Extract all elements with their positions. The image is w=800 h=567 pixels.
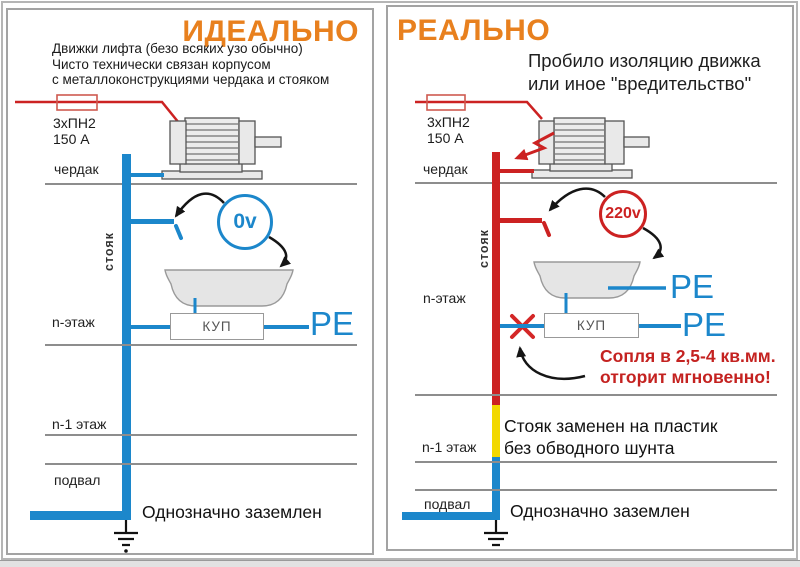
arrow-to-tub: [269, 237, 286, 266]
panel-title: РЕАЛЬНО: [397, 14, 550, 48]
riser-branch: [130, 219, 174, 224]
floor-label-basement: подвал: [54, 472, 100, 488]
floor-label-attic: чердак: [54, 161, 99, 177]
motor-icon: [532, 118, 649, 178]
floor-line: [45, 434, 357, 436]
pe-label: PE: [310, 307, 354, 340]
fuse-label-line: 150 А: [53, 131, 90, 147]
floor-label-n: n-этаж: [52, 314, 95, 330]
fuse-label-line: 3хПН2: [427, 114, 470, 130]
voltmeter-badge: 0v: [217, 194, 273, 250]
floor-line: [45, 183, 357, 185]
branch-tick: [544, 223, 549, 235]
motor-icon: [162, 118, 281, 179]
plastic-note-line: без обводного шунта: [504, 438, 674, 459]
kup-pe-wire: [639, 324, 681, 328]
floor-line: [415, 394, 777, 396]
arrow-to-tub: [643, 228, 661, 258]
arrow-to-x: [520, 348, 585, 379]
floor-label-n-1: n-1 этаж: [52, 416, 106, 432]
riser-branch: [500, 218, 542, 223]
fuse-label-line: 150 А: [427, 130, 464, 146]
warning-line: отгорит мгновенно!: [600, 367, 771, 388]
floor-line: [415, 461, 777, 463]
fuse-label-line: 3хПН2: [53, 115, 96, 131]
riser-pipe-energized: [492, 152, 500, 405]
kup-box: КУП: [544, 313, 639, 338]
riser-label: стояк: [102, 232, 116, 271]
basement-pipe: [30, 511, 131, 520]
grounded-note: Однозначно заземлен: [142, 502, 322, 523]
panel-real: РЕАЛЬНО Пробило изоляцию движка или иное…: [386, 5, 794, 551]
branch-tick: [176, 226, 181, 238]
floor-label-n-1: n-1 этаж: [422, 439, 476, 455]
ground-icon: [114, 520, 138, 553]
description-line: Движки лифта (безо всяких узо обычно): [52, 41, 303, 57]
warning-line: Сопля в 2,5-4 кв.мм.: [600, 346, 776, 367]
floor-line: [45, 344, 357, 346]
riser-pipe-plastic: [492, 405, 500, 457]
riser-kup-wire: [500, 324, 544, 328]
riser-kup-wire: [130, 325, 170, 329]
description-line: Пробило изоляцию движка: [528, 49, 761, 72]
description-line: или иное "вредительство": [528, 72, 751, 95]
description-line: Чисто технически связан корпусом: [52, 57, 271, 73]
floor-line: [45, 463, 357, 465]
floor-line: [415, 489, 777, 491]
kup-box: КУП: [170, 313, 264, 340]
floor-label-basement: подвал: [424, 496, 470, 512]
arrow-to-riser: [176, 194, 224, 216]
arrow-to-riser: [550, 189, 605, 210]
floor-label-n: n-этаж: [423, 290, 466, 306]
bathtub-icon: [165, 270, 293, 306]
pe-label-kup: PE: [682, 308, 726, 341]
floor-line: [415, 182, 777, 184]
plastic-note-line: Стояк заменен на пластик: [504, 416, 718, 437]
pe-label-tub: PE: [670, 270, 714, 303]
description-line: с металлоконструкциями чердака и стояком: [52, 72, 329, 88]
ground-icon: [484, 520, 508, 549]
kup-pe-wire: [264, 325, 309, 329]
riser-pipe: [122, 154, 131, 520]
basement-pipe: [402, 512, 500, 520]
grounded-note: Однозначно заземлен: [510, 501, 690, 522]
panel-ideal: ИДЕАЛЬНО Движки лифта (безо всяких узо о…: [6, 8, 374, 555]
floor-label-attic: чердак: [423, 161, 468, 177]
riser-label: стояк: [477, 229, 491, 268]
bathtub-icon: [534, 262, 640, 298]
voltmeter-badge: 220v: [599, 190, 647, 238]
